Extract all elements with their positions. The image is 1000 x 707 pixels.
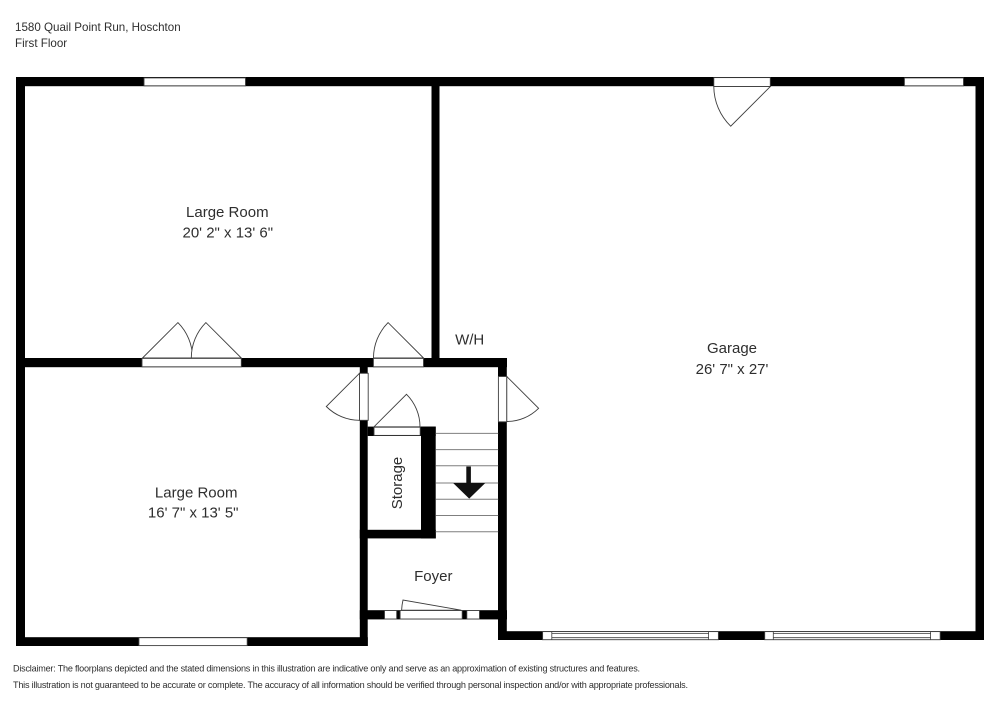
svg-text:Disclaimer: The floorplans dep: Disclaimer: The floorplans depicted and … <box>13 663 640 673</box>
svg-text:Large Room: Large Room <box>186 204 269 221</box>
svg-text:Large Room: Large Room <box>155 485 238 502</box>
svg-text:Storage: Storage <box>389 457 406 510</box>
svg-text:16' 7" x 13' 5": 16' 7" x 13' 5" <box>148 504 239 521</box>
svg-text:W/H: W/H <box>455 332 484 349</box>
svg-text:Garage: Garage <box>707 340 757 357</box>
svg-text:26' 7" x 27': 26' 7" x 27' <box>696 361 769 378</box>
svg-text:This illustration is not guara: This illustration is not guaranteed to b… <box>13 680 688 690</box>
svg-text:First Floor: First Floor <box>15 37 67 50</box>
svg-text:Foyer: Foyer <box>414 568 452 585</box>
svg-text:20' 2" x 13' 6": 20' 2" x 13' 6" <box>182 225 273 242</box>
svg-text:1580 Quail Point Run, Hoschton: 1580 Quail Point Run, Hoschton <box>15 21 181 34</box>
